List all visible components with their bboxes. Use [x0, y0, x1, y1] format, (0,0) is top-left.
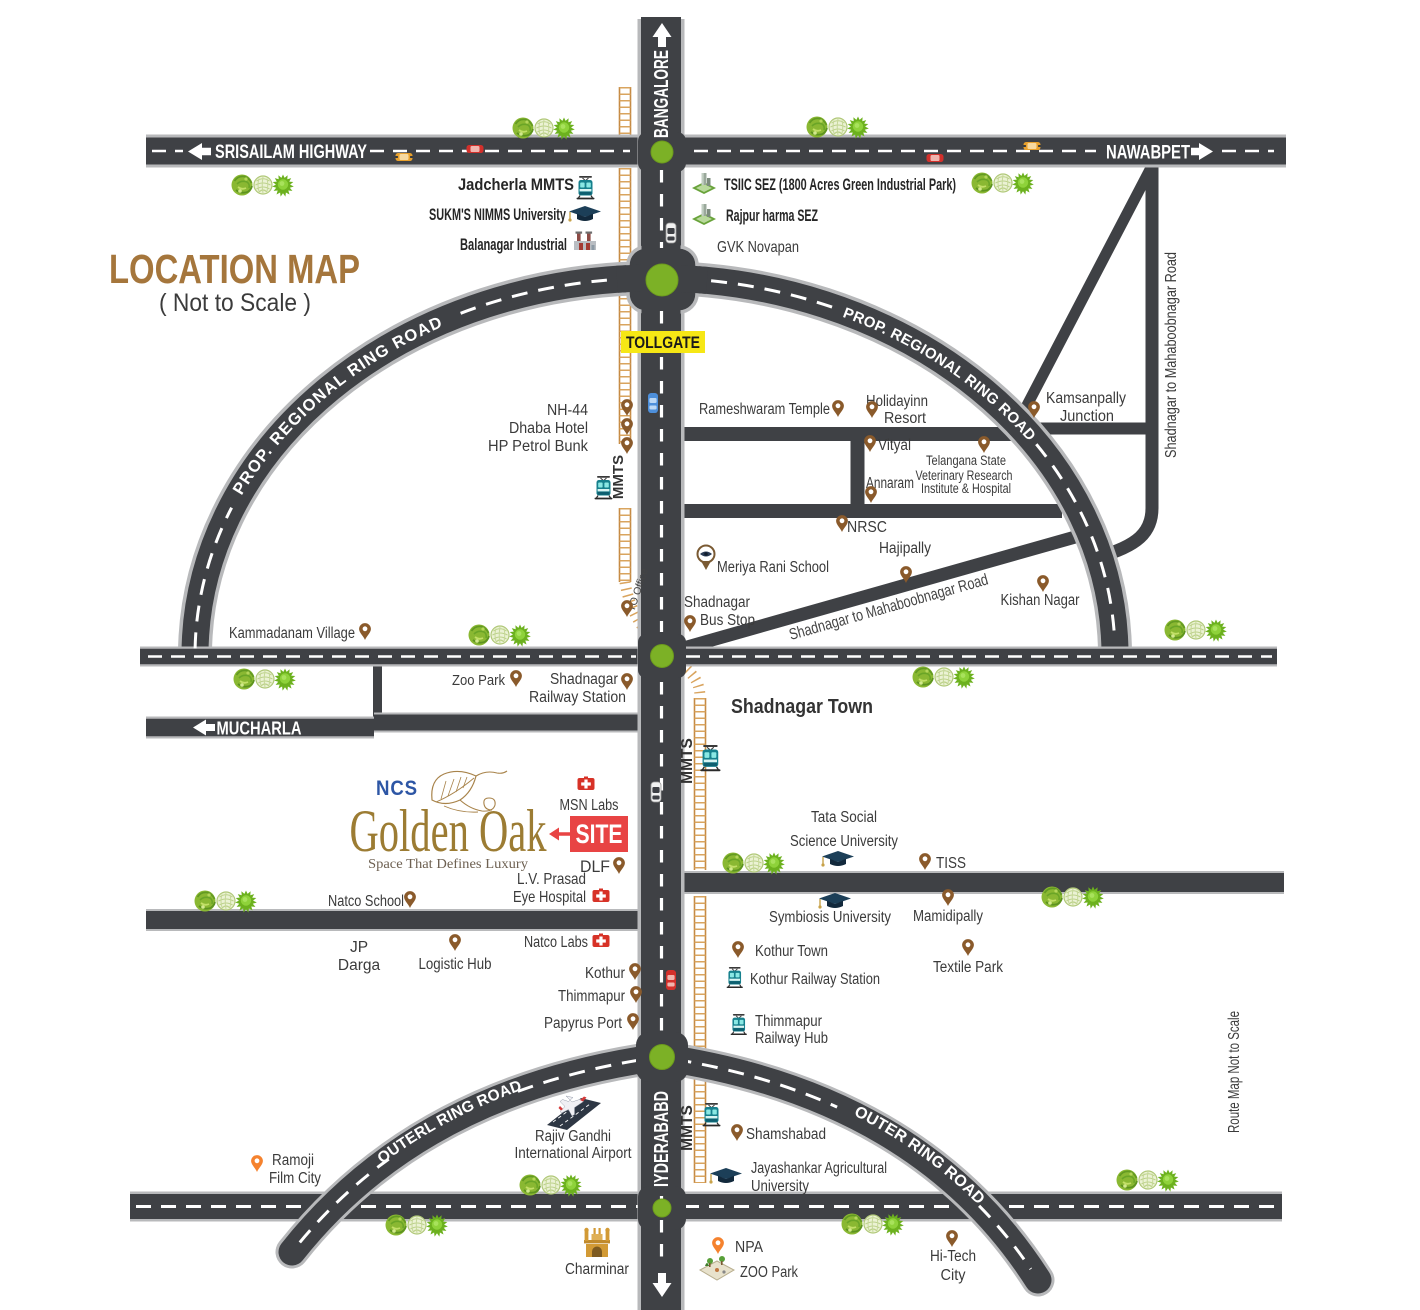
svg-text:Darga: Darga [338, 957, 381, 974]
svg-text:MMTS: MMTS [610, 455, 627, 499]
svg-text:Jayashankar Agricultural: Jayashankar Agricultural [751, 1160, 887, 1177]
svg-text:Charminar: Charminar [565, 1261, 629, 1278]
svg-text:Dhaba Hotel: Dhaba Hotel [509, 420, 588, 437]
svg-text:Shadnagar Town: Shadnagar Town [731, 696, 873, 718]
svg-text:Ramoji: Ramoji [272, 1152, 314, 1169]
svg-text:Meriya Rani School: Meriya Rani School [717, 559, 829, 576]
svg-text:Rameshwaram Temple: Rameshwaram Temple [699, 401, 830, 418]
svg-text:Rajpur harma SEZ: Rajpur harma SEZ [726, 207, 818, 225]
svg-text:Hajipally: Hajipally [879, 540, 931, 557]
svg-text:Railway Hub: Railway Hub [755, 1030, 828, 1047]
svg-text:L.V. Prasad: L.V. Prasad [517, 871, 586, 888]
svg-text:Natco School: Natco School [328, 893, 404, 910]
svg-text:MSN Labs: MSN Labs [560, 797, 619, 814]
svg-text:Route Map Not to Scale: Route Map Not to Scale [1226, 1011, 1243, 1133]
svg-text:MMTS: MMTS [679, 1105, 696, 1151]
svg-text:NPA: NPA [735, 1239, 764, 1256]
svg-text:Eye Hospital: Eye Hospital [513, 889, 586, 906]
svg-text:Kothur Railway Station: Kothur Railway Station [750, 971, 880, 988]
svg-text:Shamshabad: Shamshabad [746, 1126, 826, 1143]
svg-text:Railway Station: Railway Station [529, 689, 626, 706]
svg-text:Zoo Park: Zoo Park [452, 672, 505, 689]
svg-text:Kishan Nagar: Kishan Nagar [1001, 592, 1080, 609]
svg-text:TSIIC SEZ (1800 Acres Green In: TSIIC SEZ (1800 Acres Green Industrial P… [724, 176, 956, 194]
svg-text:BANGALORE: BANGALORE [650, 50, 673, 138]
svg-text:Tata Social: Tata Social [811, 809, 877, 826]
svg-text:Junction: Junction [1060, 408, 1114, 425]
svg-text:Symbiosis University: Symbiosis University [769, 909, 891, 926]
svg-text:Jadcherla MMTS: Jadcherla MMTS [458, 176, 574, 194]
svg-text:Bus Stop: Bus Stop [700, 612, 755, 629]
svg-text:IYDERABABD: IYDERABABD [651, 1091, 673, 1187]
svg-text:University: University [751, 1178, 809, 1195]
svg-text:Kothur Town: Kothur Town [755, 943, 828, 960]
svg-text:NRSC: NRSC [847, 519, 887, 536]
svg-text:Mamidipally: Mamidipally [913, 908, 983, 925]
svg-text:Golden Oak: Golden Oak [350, 798, 547, 864]
svg-text:LOCATION MAP: LOCATION MAP [109, 246, 360, 292]
svg-text:ZOO Park: ZOO Park [740, 1264, 798, 1281]
svg-text:Space That Defines Luxury: Space That Defines Luxury [368, 857, 528, 872]
svg-text:International Airport: International Airport [515, 1145, 633, 1162]
svg-text:JP: JP [350, 939, 368, 956]
svg-text:GVK Novapan: GVK Novapan [717, 239, 799, 256]
svg-text:NCS: NCS [376, 777, 418, 800]
svg-text:TOLLGATE: TOLLGATE [626, 334, 700, 352]
svg-text:City: City [941, 1267, 966, 1284]
svg-text:Science University: Science University [790, 833, 898, 850]
svg-text:Hi-Tech: Hi-Tech [930, 1248, 976, 1265]
svg-text:SITE: SITE [576, 819, 623, 849]
svg-text:NAWABPET: NAWABPET [1106, 142, 1190, 164]
svg-text:Kamsanpally: Kamsanpally [1046, 390, 1126, 407]
svg-text:Rajiv Gandhi: Rajiv Gandhi [535, 1128, 611, 1145]
svg-text:Kothur: Kothur [585, 965, 625, 982]
svg-text:( Not to Scale ): ( Not to Scale ) [159, 289, 311, 317]
svg-text:MMTS: MMTS [679, 738, 696, 784]
svg-text:SRISAILAM HIGHWAY: SRISAILAM HIGHWAY [215, 141, 367, 163]
svg-text:Shadnagar to Mahaboobnagar Roa: Shadnagar to Mahaboobnagar Road [1163, 252, 1180, 458]
svg-text:Balanagar Industrial: Balanagar Industrial [460, 236, 567, 254]
svg-text:Telangana State: Telangana State [926, 453, 1006, 468]
svg-text:TISS: TISS [936, 855, 966, 872]
svg-text:Resort: Resort [884, 410, 927, 427]
svg-text:Shadnagar: Shadnagar [550, 671, 618, 688]
svg-text:SUKM'S NIMMS University: SUKM'S NIMMS University [429, 206, 567, 224]
svg-text:Natco Labs: Natco Labs [524, 934, 588, 951]
svg-text:Thimmapur: Thimmapur [755, 1013, 822, 1030]
svg-text:Vityal: Vityal [878, 437, 911, 454]
svg-text:Papyrus Port: Papyrus Port [544, 1015, 623, 1032]
svg-text:Kammadanam Village: Kammadanam Village [229, 625, 355, 642]
svg-text:Thimmapur: Thimmapur [558, 988, 625, 1005]
svg-text:HP Petrol Bunk: HP Petrol Bunk [488, 438, 588, 455]
svg-text:Shadnagar: Shadnagar [684, 594, 750, 611]
svg-text:NH-44: NH-44 [547, 402, 588, 419]
svg-text:Film City: Film City [269, 1170, 321, 1187]
svg-text:Logistic Hub: Logistic Hub [419, 956, 492, 973]
svg-text:Institute & Hospital: Institute & Hospital [921, 481, 1011, 496]
svg-text:Textile Park: Textile Park [933, 959, 1003, 976]
svg-text:MUCHARLA: MUCHARLA [217, 719, 302, 739]
